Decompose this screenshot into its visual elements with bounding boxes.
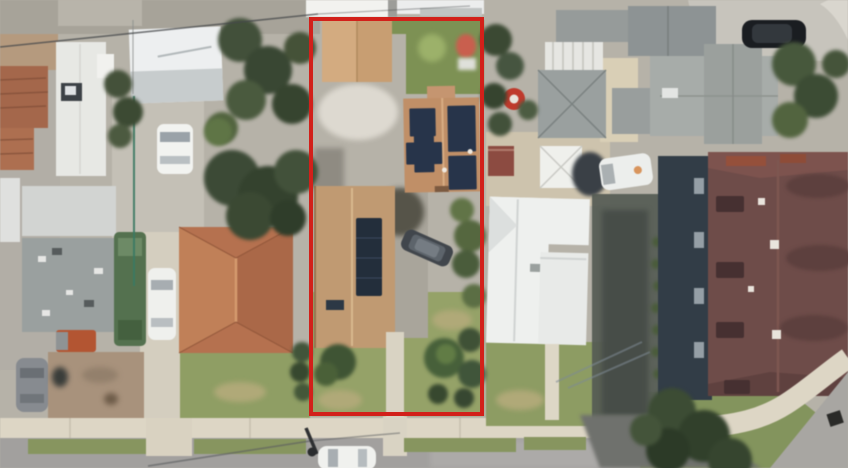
- walkway-apron-lot: [383, 414, 407, 456]
- maroon-apartment: [658, 152, 848, 400]
- shadow-driveway-core: [602, 210, 648, 416]
- white-house-right: [486, 197, 590, 346]
- gray-house-right: [650, 44, 778, 144]
- roof-gap: [388, 0, 397, 17]
- gray-car: [16, 358, 48, 412]
- gray-pyramid-house: [538, 70, 606, 138]
- white-car-street: [318, 446, 376, 468]
- front-walkway: [386, 332, 404, 420]
- red-object-rear-yard: [456, 34, 476, 58]
- dirt-mound: [104, 393, 118, 405]
- driveway-apron-left: [146, 418, 192, 456]
- dirt-shade: [82, 367, 118, 383]
- concrete-light-patch: [318, 84, 398, 140]
- solar-panel-strip: [356, 218, 382, 296]
- figure-shadow: [52, 367, 68, 387]
- brick-parapet: [726, 156, 766, 166]
- lawn-bright-patch: [418, 34, 446, 62]
- brick-parapet-2: [780, 154, 806, 163]
- roof-shade-band: [420, 8, 482, 16]
- white-patch-rear: [458, 58, 476, 70]
- green-trailer-truck: [114, 232, 146, 346]
- white-building-long-left: [56, 42, 114, 176]
- aerial-photo: [0, 0, 848, 468]
- detached-garage: [322, 20, 392, 82]
- solar-house-upper: [403, 85, 481, 192]
- roof-fragment-top-left: [58, 0, 142, 26]
- orange-truck: [56, 330, 96, 352]
- dirt-yard: [48, 352, 144, 422]
- white-house-left: [129, 26, 224, 103]
- solar-house-lower: [315, 186, 395, 348]
- white-car-driveway: [157, 124, 193, 174]
- driveway-stain: [314, 148, 344, 192]
- corrugated-shed: [545, 42, 603, 70]
- terracotta-house: [179, 227, 293, 353]
- white-sedan: [148, 268, 176, 340]
- satellite-image: [0, 0, 848, 468]
- aerial-scene: [0, 0, 848, 468]
